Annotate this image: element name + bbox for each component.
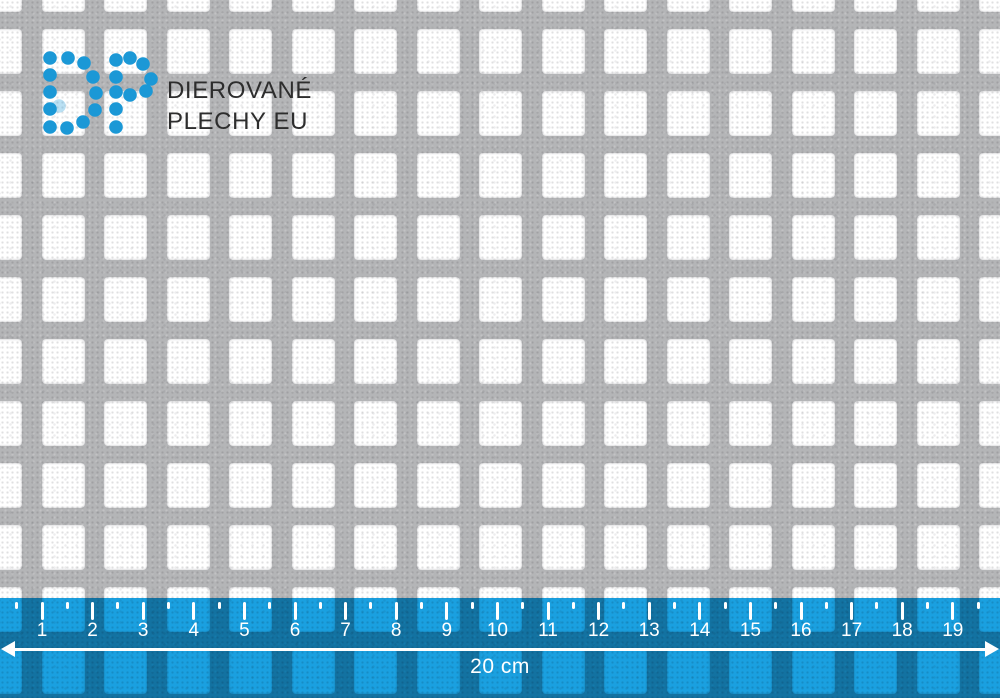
hole bbox=[417, 0, 460, 12]
hole bbox=[667, 153, 710, 198]
hole bbox=[854, 0, 897, 12]
hole bbox=[479, 153, 522, 198]
hole bbox=[42, 463, 85, 508]
ruler-tick-major bbox=[41, 602, 44, 620]
ruler-tick-major bbox=[648, 602, 651, 620]
hole bbox=[542, 29, 585, 74]
hole bbox=[667, 0, 710, 12]
hole bbox=[729, 339, 772, 384]
hole bbox=[667, 29, 710, 74]
hole bbox=[417, 277, 460, 322]
hole bbox=[292, 153, 335, 198]
hole bbox=[979, 339, 1000, 384]
ruler-number: 8 bbox=[379, 620, 413, 642]
hole bbox=[667, 463, 710, 508]
hole bbox=[917, 401, 960, 446]
hole bbox=[479, 277, 522, 322]
hole bbox=[979, 401, 1000, 446]
hole bbox=[667, 215, 710, 260]
hole bbox=[229, 29, 272, 74]
ruler-tick-minor bbox=[926, 602, 929, 609]
ruler-tick-major bbox=[496, 602, 499, 620]
hole bbox=[917, 29, 960, 74]
ruler-number: 9 bbox=[430, 620, 464, 642]
hole bbox=[667, 401, 710, 446]
hole bbox=[917, 153, 960, 198]
hole bbox=[479, 401, 522, 446]
hole bbox=[979, 215, 1000, 260]
hole bbox=[167, 525, 210, 570]
hole bbox=[792, 525, 835, 570]
hole bbox=[0, 339, 22, 384]
ruler-tick-major bbox=[597, 602, 600, 620]
ruler-tick-minor bbox=[774, 602, 777, 609]
hole bbox=[229, 463, 272, 508]
ruler-tick-minor bbox=[572, 602, 575, 609]
hole bbox=[104, 463, 147, 508]
ruler-tick-minor bbox=[977, 602, 980, 609]
hole bbox=[854, 91, 897, 136]
hole bbox=[417, 401, 460, 446]
hole bbox=[792, 401, 835, 446]
ruler-tick-minor bbox=[521, 602, 524, 609]
hole bbox=[917, 277, 960, 322]
hole bbox=[979, 463, 1000, 508]
hole bbox=[167, 215, 210, 260]
hole bbox=[354, 463, 397, 508]
hole bbox=[604, 29, 647, 74]
ruler-tick-major bbox=[800, 602, 803, 620]
hole bbox=[542, 401, 585, 446]
hole bbox=[917, 463, 960, 508]
hole bbox=[917, 0, 960, 12]
ruler: 12345678910111213141516171819 20 cm bbox=[0, 598, 1000, 698]
ruler-tick-major bbox=[445, 602, 448, 620]
ruler-tick-major bbox=[243, 602, 246, 620]
ruler-tick-minor bbox=[622, 602, 625, 609]
hole bbox=[354, 339, 397, 384]
hole bbox=[542, 339, 585, 384]
hole bbox=[542, 277, 585, 322]
hole bbox=[167, 153, 210, 198]
hole bbox=[229, 215, 272, 260]
hole bbox=[0, 525, 22, 570]
hole bbox=[104, 277, 147, 322]
hole bbox=[167, 0, 210, 12]
hole bbox=[42, 401, 85, 446]
hole bbox=[229, 525, 272, 570]
hole bbox=[292, 525, 335, 570]
ruler-tick-major bbox=[395, 602, 398, 620]
hole bbox=[729, 0, 772, 12]
hole bbox=[729, 463, 772, 508]
ruler-tick-minor bbox=[369, 602, 372, 609]
hole bbox=[417, 29, 460, 74]
ruler-number: 5 bbox=[227, 620, 261, 642]
ruler-tick-major bbox=[901, 602, 904, 620]
hole bbox=[792, 277, 835, 322]
ruler-number: 1 bbox=[25, 620, 59, 642]
hole bbox=[104, 215, 147, 260]
hole bbox=[979, 29, 1000, 74]
hole bbox=[979, 525, 1000, 570]
ruler-tick-major bbox=[192, 602, 195, 620]
hole bbox=[479, 339, 522, 384]
hole bbox=[479, 91, 522, 136]
ruler-tick-minor bbox=[875, 602, 878, 609]
hole bbox=[417, 91, 460, 136]
hole bbox=[0, 215, 22, 260]
hole bbox=[542, 91, 585, 136]
ruler-tick-major bbox=[951, 602, 954, 620]
hole bbox=[854, 277, 897, 322]
hole bbox=[417, 463, 460, 508]
hole bbox=[604, 339, 647, 384]
ruler-number: 17 bbox=[835, 620, 869, 642]
hole bbox=[854, 525, 897, 570]
ruler-number: 10 bbox=[480, 620, 514, 642]
ruler-tick-major bbox=[850, 602, 853, 620]
hole bbox=[42, 525, 85, 570]
ruler-tick-minor bbox=[15, 602, 18, 609]
hole bbox=[354, 277, 397, 322]
hole bbox=[479, 0, 522, 12]
ruler-number: 3 bbox=[126, 620, 160, 642]
hole bbox=[417, 215, 460, 260]
hole bbox=[667, 525, 710, 570]
ruler-number: 19 bbox=[936, 620, 970, 642]
ruler-tick-minor bbox=[319, 602, 322, 609]
hole bbox=[104, 153, 147, 198]
hole bbox=[729, 215, 772, 260]
hole bbox=[604, 401, 647, 446]
hole bbox=[917, 91, 960, 136]
hole bbox=[292, 401, 335, 446]
ruler-tick-major bbox=[698, 602, 701, 620]
hole bbox=[292, 463, 335, 508]
hole bbox=[167, 401, 210, 446]
hole bbox=[479, 215, 522, 260]
hole bbox=[479, 29, 522, 74]
ruler-number: 2 bbox=[76, 620, 110, 642]
hole bbox=[854, 339, 897, 384]
hole bbox=[854, 401, 897, 446]
hole bbox=[479, 463, 522, 508]
hole bbox=[854, 215, 897, 260]
hole bbox=[229, 401, 272, 446]
brand-line2: PLECHY EU bbox=[167, 106, 312, 137]
hole bbox=[792, 153, 835, 198]
hole bbox=[42, 0, 85, 12]
hole bbox=[292, 339, 335, 384]
ruler-number: 16 bbox=[784, 620, 818, 642]
brand-line1: DIEROVANÉ bbox=[167, 75, 312, 106]
hole bbox=[417, 525, 460, 570]
ruler-tick-major bbox=[547, 602, 550, 620]
hole bbox=[42, 215, 85, 260]
hole bbox=[729, 525, 772, 570]
hole bbox=[542, 215, 585, 260]
hole bbox=[229, 0, 272, 12]
ruler-tick-major bbox=[344, 602, 347, 620]
hole bbox=[542, 525, 585, 570]
hole bbox=[354, 91, 397, 136]
hole bbox=[792, 0, 835, 12]
ruler-tick-major bbox=[749, 602, 752, 620]
hole bbox=[354, 401, 397, 446]
ruler-tick-minor bbox=[66, 602, 69, 609]
hole bbox=[604, 463, 647, 508]
ruler-tick-minor bbox=[218, 602, 221, 609]
hole bbox=[604, 91, 647, 136]
ruler-tick-minor bbox=[471, 602, 474, 609]
hole bbox=[667, 339, 710, 384]
hole bbox=[354, 525, 397, 570]
hole bbox=[104, 339, 147, 384]
hole bbox=[42, 339, 85, 384]
hole bbox=[792, 29, 835, 74]
hole bbox=[729, 153, 772, 198]
ruler-tick-minor bbox=[673, 602, 676, 609]
hole bbox=[979, 277, 1000, 322]
hole bbox=[917, 339, 960, 384]
hole bbox=[0, 29, 22, 74]
hole bbox=[917, 215, 960, 260]
hole bbox=[854, 29, 897, 74]
hole bbox=[104, 0, 147, 12]
ruler-tick-major bbox=[91, 602, 94, 620]
ruler-tick-minor bbox=[116, 602, 119, 609]
hole bbox=[417, 153, 460, 198]
ruler-number: 18 bbox=[885, 620, 919, 642]
ruler-tick-minor bbox=[167, 602, 170, 609]
hole bbox=[729, 29, 772, 74]
hole bbox=[292, 29, 335, 74]
hole bbox=[42, 277, 85, 322]
ruler-number: 6 bbox=[278, 620, 312, 642]
hole bbox=[292, 277, 335, 322]
hole bbox=[104, 401, 147, 446]
hole bbox=[979, 153, 1000, 198]
hole bbox=[167, 339, 210, 384]
hole bbox=[667, 91, 710, 136]
hole bbox=[0, 277, 22, 322]
hole bbox=[167, 277, 210, 322]
hole bbox=[917, 525, 960, 570]
ruler-tick-major bbox=[294, 602, 297, 620]
ruler-tick-minor bbox=[724, 602, 727, 609]
hole bbox=[354, 0, 397, 12]
hole bbox=[604, 525, 647, 570]
hole bbox=[542, 153, 585, 198]
hole bbox=[542, 0, 585, 12]
hole bbox=[792, 215, 835, 260]
hole bbox=[104, 525, 147, 570]
ruler-number: 13 bbox=[632, 620, 666, 642]
hole bbox=[167, 463, 210, 508]
hole bbox=[792, 339, 835, 384]
hole bbox=[479, 525, 522, 570]
hole bbox=[0, 401, 22, 446]
hole bbox=[667, 277, 710, 322]
hole bbox=[167, 29, 210, 74]
hole bbox=[604, 153, 647, 198]
hole bbox=[729, 91, 772, 136]
ruler-tick-minor bbox=[825, 602, 828, 609]
hole bbox=[729, 277, 772, 322]
brand-name: DIEROVANÉ PLECHY EU bbox=[167, 75, 312, 137]
measure-line bbox=[11, 648, 989, 651]
ruler-number: 12 bbox=[582, 620, 616, 642]
hole bbox=[0, 91, 22, 136]
hole bbox=[417, 339, 460, 384]
hole bbox=[729, 401, 772, 446]
hole bbox=[854, 153, 897, 198]
ruler-tick-major bbox=[142, 602, 145, 620]
hole bbox=[0, 153, 22, 198]
dp-logo-icon bbox=[43, 51, 168, 141]
hole bbox=[604, 277, 647, 322]
ruler-number: 11 bbox=[531, 620, 565, 642]
hole bbox=[292, 0, 335, 12]
hole bbox=[0, 463, 22, 508]
ruler-number: 15 bbox=[733, 620, 767, 642]
hole bbox=[979, 91, 1000, 136]
hole bbox=[354, 29, 397, 74]
ruler-tick-minor bbox=[420, 602, 423, 609]
hole bbox=[229, 277, 272, 322]
hole bbox=[792, 463, 835, 508]
hole bbox=[854, 463, 897, 508]
hole bbox=[354, 215, 397, 260]
measure-total-label: 20 cm bbox=[0, 655, 1000, 679]
ruler-number: 14 bbox=[683, 620, 717, 642]
hole bbox=[42, 153, 85, 198]
hole bbox=[979, 0, 1000, 12]
hole bbox=[604, 0, 647, 12]
hole bbox=[604, 215, 647, 260]
hole bbox=[542, 463, 585, 508]
hole bbox=[354, 153, 397, 198]
ruler-tick-minor bbox=[268, 602, 271, 609]
ruler-number: 4 bbox=[177, 620, 211, 642]
hole bbox=[229, 339, 272, 384]
ruler-number: 7 bbox=[329, 620, 363, 642]
product-photo: 12345678910111213141516171819 20 cm DIER… bbox=[0, 0, 1000, 698]
hole bbox=[292, 215, 335, 260]
hole bbox=[0, 0, 22, 12]
hole bbox=[229, 153, 272, 198]
hole bbox=[792, 91, 835, 136]
